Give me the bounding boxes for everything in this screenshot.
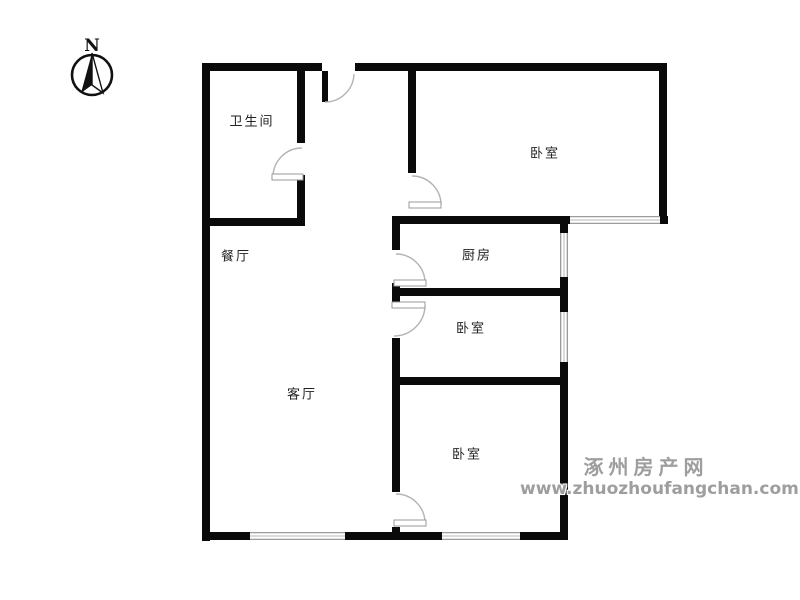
watermark-site-name: 涿州房产网 — [520, 456, 772, 478]
wall-bedroom-middle-bottom — [392, 377, 568, 385]
room-label-dining-room: 餐厅 — [221, 246, 251, 265]
wall-inner-left-wall-d — [392, 527, 400, 540]
bathroom-door-panel — [272, 174, 303, 180]
room-label-kitchen: 厨房 — [462, 245, 492, 264]
wall-kitchen-left-wall-a — [392, 216, 400, 250]
wall-bathroom-bottom-wall — [202, 218, 305, 226]
room-label-bedroom-top: 卧室 — [530, 143, 560, 162]
wall-inner-left-wall-c — [392, 338, 400, 492]
wall-bedroom-top-left-wall — [408, 63, 416, 173]
compass-north-label: N — [84, 36, 100, 56]
kitchen-door-arc — [396, 254, 425, 283]
wall-left-wall — [202, 63, 210, 541]
wall-bathroom-right-wall-a — [297, 63, 305, 143]
kitchen-door-panel — [394, 280, 426, 286]
bedroom-bottom-door-arc — [396, 494, 425, 523]
compass-needle-dark — [81, 53, 92, 93]
wall-kitchen-bedroom-divider — [392, 288, 568, 296]
wall-right-wall-upper — [659, 63, 667, 224]
watermark: 涿州房产网 www.zhuozhoufangchan.com — [520, 456, 772, 499]
bedroom-middle-door-panel — [392, 302, 425, 308]
compass-needle-light — [92, 53, 103, 93]
room-label-bathroom: 卫生间 — [229, 111, 274, 130]
bedroom-bottom-door-panel — [394, 520, 426, 526]
watermark-url: www.zhuozhoufangchan.com — [520, 480, 772, 499]
room-label-bedroom-middle: 卧室 — [456, 318, 486, 337]
room-label-bedroom-bottom: 卧室 — [452, 444, 482, 463]
bedroom-top-door-panel — [409, 202, 441, 208]
floorplan-canvas: N 卫生间卧室餐厅厨房卧室客厅卧室 涿州房产网 www.zhuozhoufang… — [0, 0, 800, 600]
room-label-living-room: 客厅 — [287, 384, 317, 403]
bedroom-middle-door-arc — [394, 305, 425, 336]
wall-top-wall-right — [355, 63, 667, 71]
floorplan-drawing: N — [0, 0, 800, 600]
wall-entry-door-stub — [322, 71, 328, 102]
bedroom-top-door-arc — [412, 176, 441, 205]
entry-door-arc — [325, 74, 354, 102]
bathroom-door-arc — [273, 148, 302, 177]
